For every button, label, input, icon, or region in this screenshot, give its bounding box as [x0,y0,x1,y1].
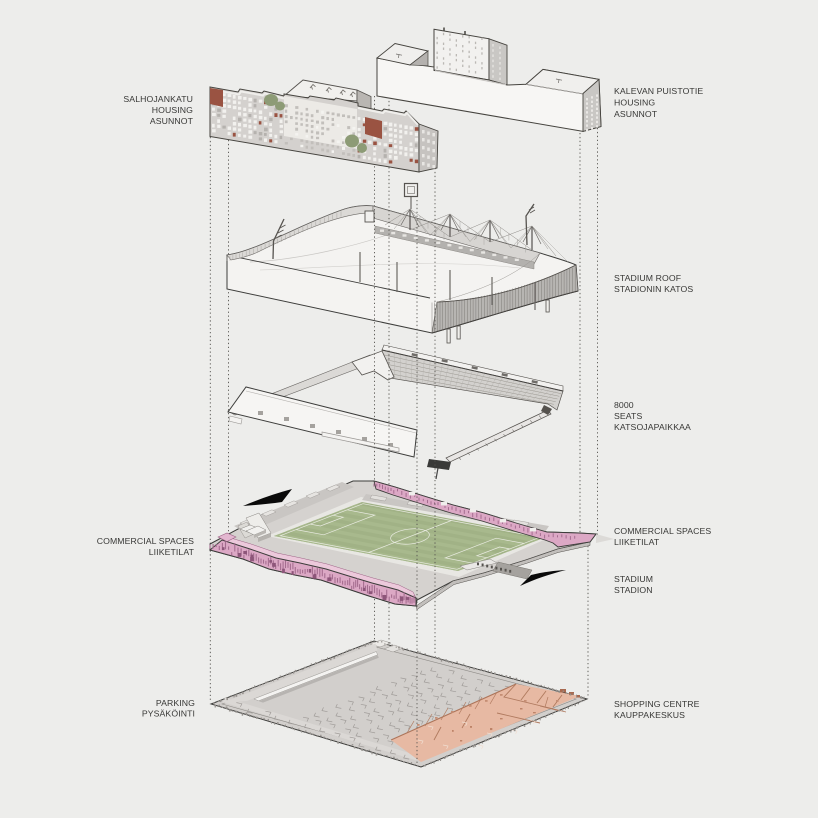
svg-text:PYSÄKÖINTI: PYSÄKÖINTI [142,709,195,719]
svg-text:STADIUM ROOF: STADIUM ROOF [614,273,681,283]
svg-text:SEATS: SEATS [614,411,642,421]
svg-text:LIIKETILAT: LIIKETILAT [149,547,195,557]
svg-text:8000: 8000 [614,400,634,410]
svg-text:KAUPPAKESKUS: KAUPPAKESKUS [614,710,685,720]
svg-text:PARKING: PARKING [156,698,195,708]
svg-text:STADION: STADION [614,585,653,595]
svg-text:KATSOJAPAIKKAA: KATSOJAPAIKKAA [614,422,691,432]
svg-text:ASUNNOT: ASUNNOT [150,116,194,126]
svg-text:SALHOJANKATU: SALHOJANKATU [123,94,193,104]
svg-text:STADIONIN KATOS: STADIONIN KATOS [614,284,693,294]
svg-text:LIIKETILAT: LIIKETILAT [614,537,660,547]
svg-text:COMMERCIAL SPACES: COMMERCIAL SPACES [97,536,194,546]
svg-text:KALEVAN PUISTOTIE: KALEVAN PUISTOTIE [614,86,703,96]
svg-text:COMMERCIAL SPACES: COMMERCIAL SPACES [614,526,711,536]
svg-text:HOUSING: HOUSING [614,98,655,108]
svg-text:STADIUM: STADIUM [614,574,653,584]
svg-text:HOUSING: HOUSING [152,105,193,115]
svg-text:ASUNNOT: ASUNNOT [614,109,658,119]
svg-text:SHOPPING CENTRE: SHOPPING CENTRE [614,699,700,709]
